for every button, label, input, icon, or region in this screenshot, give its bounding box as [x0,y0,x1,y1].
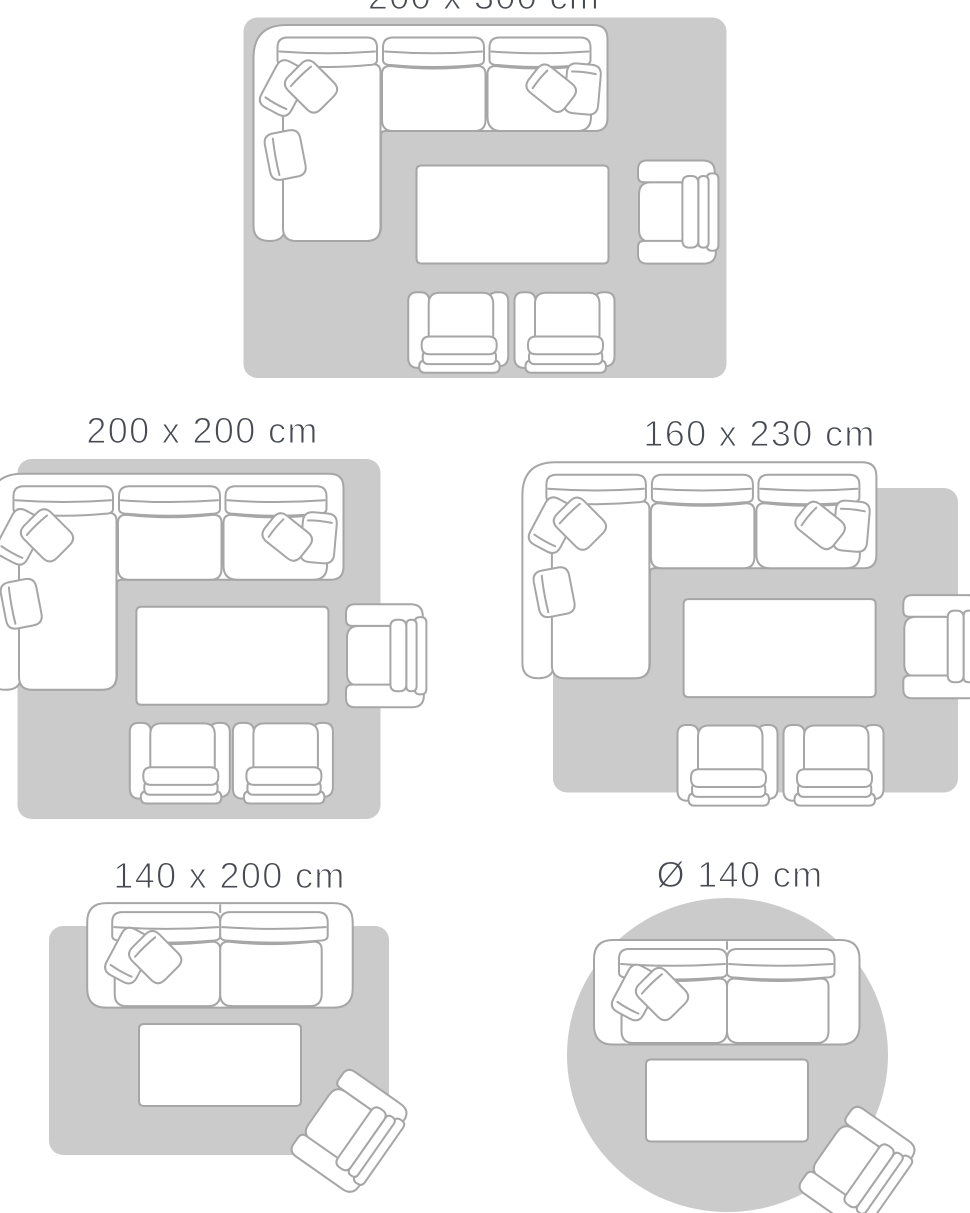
svg-text:200 x 300 cm: 200 x 300 cm [368,0,600,17]
svg-text:140 x 200 cm: 140 x 200 cm [113,855,345,896]
svg-text:160 x 230 cm: 160 x 230 cm [643,413,875,454]
svg-text:200 x 200 cm: 200 x 200 cm [86,410,318,451]
svg-text:Ø 140 cm: Ø 140 cm [657,854,824,895]
